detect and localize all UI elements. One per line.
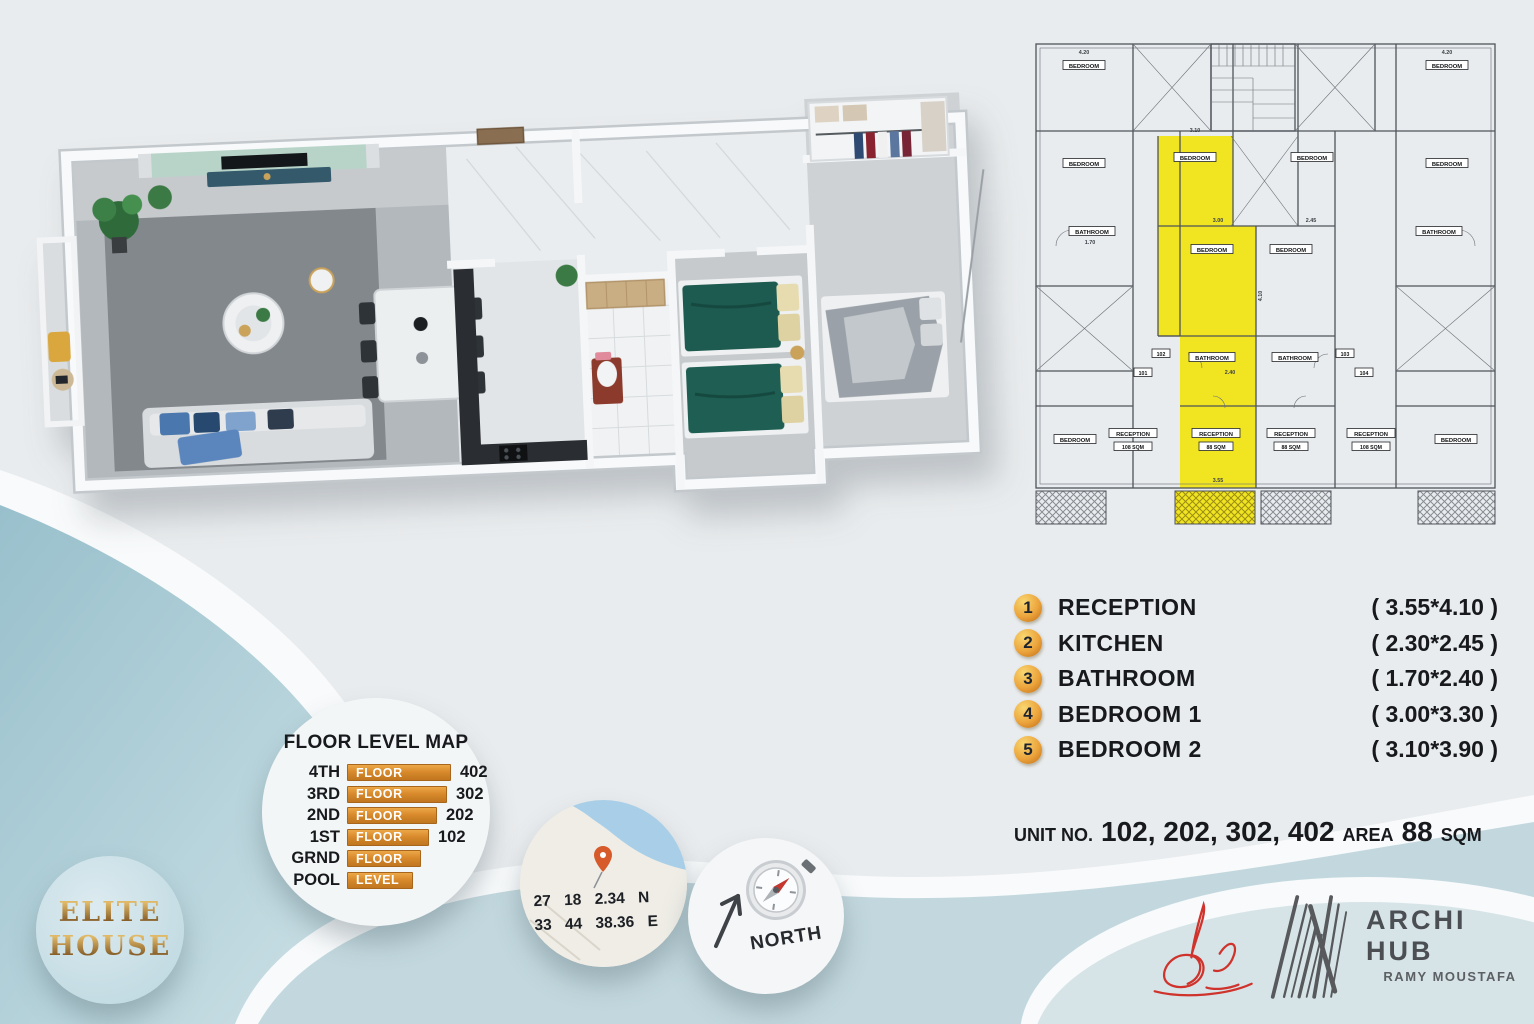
- svg-text:1.70: 1.70: [1085, 240, 1096, 246]
- north-arrow-icon: [716, 896, 740, 946]
- plan-label-area: 88 SQM: [1281, 445, 1300, 451]
- floor-bar: FLOOR: [347, 786, 447, 803]
- area-unit: SQM: [1441, 825, 1482, 846]
- legend-room-dims: ( 2.30*2.45 ): [1371, 630, 1498, 657]
- legend-row: 2 KITCHEN ( 2.30*2.45 ): [1014, 626, 1498, 662]
- unit-no-label: UNIT NO.: [1014, 825, 1093, 846]
- plan-unit-tag: 102: [1157, 352, 1166, 358]
- towel: [595, 352, 611, 361]
- legend-number-badge: 3: [1014, 665, 1042, 693]
- plan-label-bedroom: BEDROOM: [1432, 162, 1462, 168]
- north-indicator: NORTH: [688, 838, 844, 994]
- side-table: [309, 268, 334, 293]
- floor-level: 2ND: [288, 806, 340, 825]
- location-map-badge: 27 18 2.34 N 33 44 38.36 E: [520, 800, 687, 967]
- floor-unit-number: 202: [446, 806, 474, 825]
- floor-map-row: 1ST FLOOR 102: [262, 827, 490, 849]
- legend-number-badge: 1: [1014, 594, 1042, 622]
- signature: [1150, 894, 1255, 1002]
- elite-house-logo: ELITE HOUSE: [36, 856, 184, 1004]
- plan-label-reception: RECEPTION: [1354, 432, 1388, 438]
- legend-room-name: BEDROOM 1: [1058, 701, 1202, 728]
- plan-unit-tag: 101: [1139, 371, 1148, 377]
- legend-room-dims: ( 3.10*3.90 ): [1371, 736, 1498, 763]
- staircase: [1211, 44, 1295, 131]
- wood-cabinet: [586, 279, 665, 308]
- plan-label-reception: RECEPTION: [1274, 432, 1308, 438]
- legend-room-dims: ( 3.00*3.30 ): [1371, 701, 1498, 728]
- floor-level: 3RD: [288, 785, 340, 804]
- legend-number-badge: 2: [1014, 629, 1042, 657]
- plan-label-reception: RECEPTION: [1199, 432, 1233, 438]
- svg-text:4.10: 4.10: [1258, 291, 1264, 302]
- plan-label-bathroom: BATHROOM: [1422, 230, 1456, 236]
- entry-door: [477, 127, 524, 144]
- plan-label-bedroom: BEDROOM: [1297, 156, 1327, 162]
- plan-label-bedroom: BEDROOM: [1180, 156, 1210, 162]
- archi-hub-logo-mark: [1269, 890, 1356, 1002]
- floor-map-title: FLOOR LEVEL MAP: [262, 732, 490, 754]
- plan-label-bedroom: BEDROOM: [1197, 248, 1227, 254]
- plan-room-labels: BEDROOM BEDROOM BEDROOM BEDROOM BEDROOM …: [1054, 61, 1477, 451]
- studio-text: ARCHI HUB RAMY MOUSTAFA: [1366, 905, 1534, 984]
- unit-numbers: 102, 202, 302, 402: [1101, 816, 1335, 848]
- floor-map-row: GRND FLOOR: [262, 848, 490, 870]
- legend-row: 5 BEDROOM 2 ( 3.10*3.90 ): [1014, 732, 1498, 768]
- plan-label-reception: RECEPTION: [1116, 432, 1150, 438]
- plan-label-bathroom: BATHROOM: [1195, 356, 1229, 362]
- legend-row: 3 BATHROOM ( 1.70*2.40 ): [1014, 661, 1498, 697]
- plan-walls: [1036, 44, 1495, 488]
- plan-label-area: 88 SQM: [1206, 445, 1225, 451]
- building-floor-plan: BEDROOM BEDROOM BEDROOM BEDROOM BEDROOM …: [1028, 36, 1506, 544]
- legend-number-badge: 5: [1014, 736, 1042, 764]
- floor-map-row: 4TH FLOOR 402: [262, 762, 490, 784]
- legend-room-name: BEDROOM 2: [1058, 736, 1202, 763]
- plan-unit-tag: 104: [1360, 371, 1369, 377]
- floor-unit-number: 402: [460, 763, 488, 782]
- bed1-blanket: [682, 281, 781, 351]
- plan-label-bedroom: BEDROOM: [1276, 248, 1306, 254]
- compass-graphic: [688, 838, 844, 994]
- floor-bar: FLOOR: [347, 807, 437, 824]
- floor-bar: FLOOR: [347, 764, 451, 781]
- floor-bar: LEVEL: [347, 872, 413, 889]
- highlighted-balcony-hatch: [1175, 491, 1255, 524]
- floor-map-row: POOL LEVEL: [262, 870, 490, 892]
- studio-name: ARCHI HUB: [1366, 905, 1534, 967]
- floor-level: POOL: [288, 871, 340, 890]
- brand-line1: ELITE: [59, 896, 162, 930]
- compass-icon: [742, 851, 817, 925]
- plan-label-bedroom: BEDROOM: [1060, 438, 1090, 444]
- floor-map-row: 2ND FLOOR 202: [262, 805, 490, 827]
- floor-map-rows: 4TH FLOOR 402 3RD FLOOR 302 2ND FLOOR 20…: [262, 762, 490, 891]
- plan-label-bedroom: BEDROOM: [1432, 64, 1462, 70]
- floor-map-row: 3RD FLOOR 302: [262, 784, 490, 806]
- floor-unit-number: 302: [456, 785, 484, 804]
- studio-block: ARCHI HUB RAMY MOUSTAFA: [1150, 890, 1534, 1002]
- plan-label-bedroom: BEDROOM: [1069, 162, 1099, 168]
- studio-subtitle: RAMY MOUSTAFA: [1366, 969, 1534, 984]
- svg-text:3.55: 3.55: [1213, 478, 1224, 484]
- legend-room-name: BATHROOM: [1058, 665, 1196, 692]
- plan-label-bathroom: BATHROOM: [1278, 356, 1312, 362]
- plan-label-bathroom: BATHROOM: [1075, 230, 1109, 236]
- light-shafts: [1036, 44, 1495, 371]
- area-value: 88: [1402, 816, 1433, 848]
- floor-bar: FLOOR: [347, 829, 429, 846]
- svg-text:3.00: 3.00: [1213, 218, 1224, 224]
- mini-map: [520, 800, 687, 967]
- plan-label-bedroom: BEDROOM: [1069, 64, 1099, 70]
- floor-level-map: FLOOR LEVEL MAP 4TH FLOOR 402 3RD FLOOR …: [262, 698, 490, 926]
- stove: [499, 444, 528, 461]
- legend-room-name: KITCHEN: [1058, 630, 1164, 657]
- svg-text:4.20: 4.20: [1079, 50, 1090, 56]
- balcony-chair: [48, 331, 71, 362]
- floor-bar: FLOOR: [347, 850, 421, 867]
- longitude: 33 44 38.36 E: [534, 910, 658, 938]
- plan-label-area: 108 SQM: [1360, 445, 1382, 451]
- floor-level: 1ST: [288, 828, 340, 847]
- unit-info-line: UNIT NO. 102, 202, 302, 402 AREA 88 SQM: [1014, 816, 1498, 848]
- legend-room-name: RECEPTION: [1058, 594, 1197, 621]
- legend-room-dims: ( 3.55*4.10 ): [1371, 594, 1498, 621]
- room-legend: 1 RECEPTION ( 3.55*4.10 ) 2 KITCHEN ( 2.…: [1014, 590, 1498, 768]
- legend-number-badge: 4: [1014, 700, 1042, 728]
- floor-level: 4TH: [288, 763, 340, 782]
- legend-row: 1 RECEPTION ( 3.55*4.10 ): [1014, 590, 1498, 626]
- coordinates: 27 18 2.34 N 33 44 38.36 E: [533, 886, 658, 938]
- area-label: AREA: [1343, 825, 1394, 846]
- floor-level: GRND: [288, 849, 340, 868]
- balconies: [1036, 491, 1495, 524]
- apartment-3d-render: [13, 41, 1011, 528]
- floor-unit-number: 102: [438, 828, 466, 847]
- legend-room-dims: ( 1.70*2.40 ): [1371, 665, 1498, 692]
- svg-text:4.20: 4.20: [1442, 50, 1453, 56]
- brochure-page: BEDROOM BEDROOM BEDROOM BEDROOM BEDROOM …: [0, 0, 1534, 1024]
- brand-line2: HOUSE: [49, 930, 172, 964]
- plan-label-bedroom: BEDROOM: [1441, 438, 1471, 444]
- svg-text:3.10: 3.10: [1190, 128, 1201, 134]
- svg-text:2.40: 2.40: [1225, 370, 1236, 376]
- plan-unit-tag: 103: [1341, 352, 1350, 358]
- svg-text:2.45: 2.45: [1306, 218, 1317, 224]
- plan-label-area: 108 SQM: [1122, 445, 1144, 451]
- legend-row: 4 BEDROOM 1 ( 3.00*3.30 ): [1014, 697, 1498, 733]
